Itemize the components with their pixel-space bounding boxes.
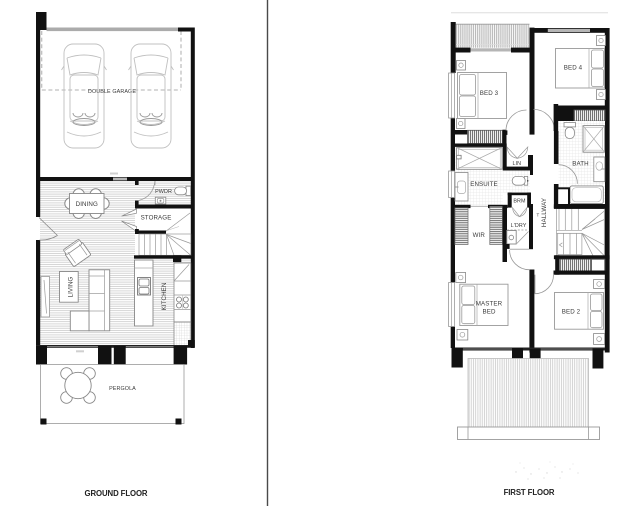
svg-text:PERGOLA: PERGOLA [109,386,136,392]
svg-text:DOUBLE GARAGE: DOUBLE GARAGE [88,89,136,95]
svg-text:LIVING: LIVING [68,276,75,297]
svg-text:WIR: WIR [473,232,486,239]
svg-text:L'DRY: L'DRY [511,223,527,229]
svg-text:LIN: LIN [512,161,521,167]
svg-text:BRM: BRM [513,199,526,205]
svg-text:BED 3: BED 3 [480,90,499,97]
svg-text:MASTER: MASTER [476,301,503,308]
svg-text:DINING: DINING [76,201,98,208]
svg-text:BED 4: BED 4 [564,65,583,72]
svg-text:BATH: BATH [572,161,588,168]
svg-text:ENSUITE: ENSUITE [470,181,498,188]
svg-text:PWDR: PWDR [155,189,172,195]
svg-text:GROUND FLOOR: GROUND FLOOR [85,489,148,498]
svg-text:T: T [537,213,540,218]
svg-text:FIRST FLOOR: FIRST FLOOR [504,488,555,497]
svg-text:HALLWAY: HALLWAY [541,198,548,227]
svg-text:BED: BED [482,309,495,316]
svg-text:KITCHEN: KITCHEN [161,283,168,311]
svg-text:BED 2: BED 2 [562,309,581,316]
svg-text:STORAGE: STORAGE [141,215,172,222]
